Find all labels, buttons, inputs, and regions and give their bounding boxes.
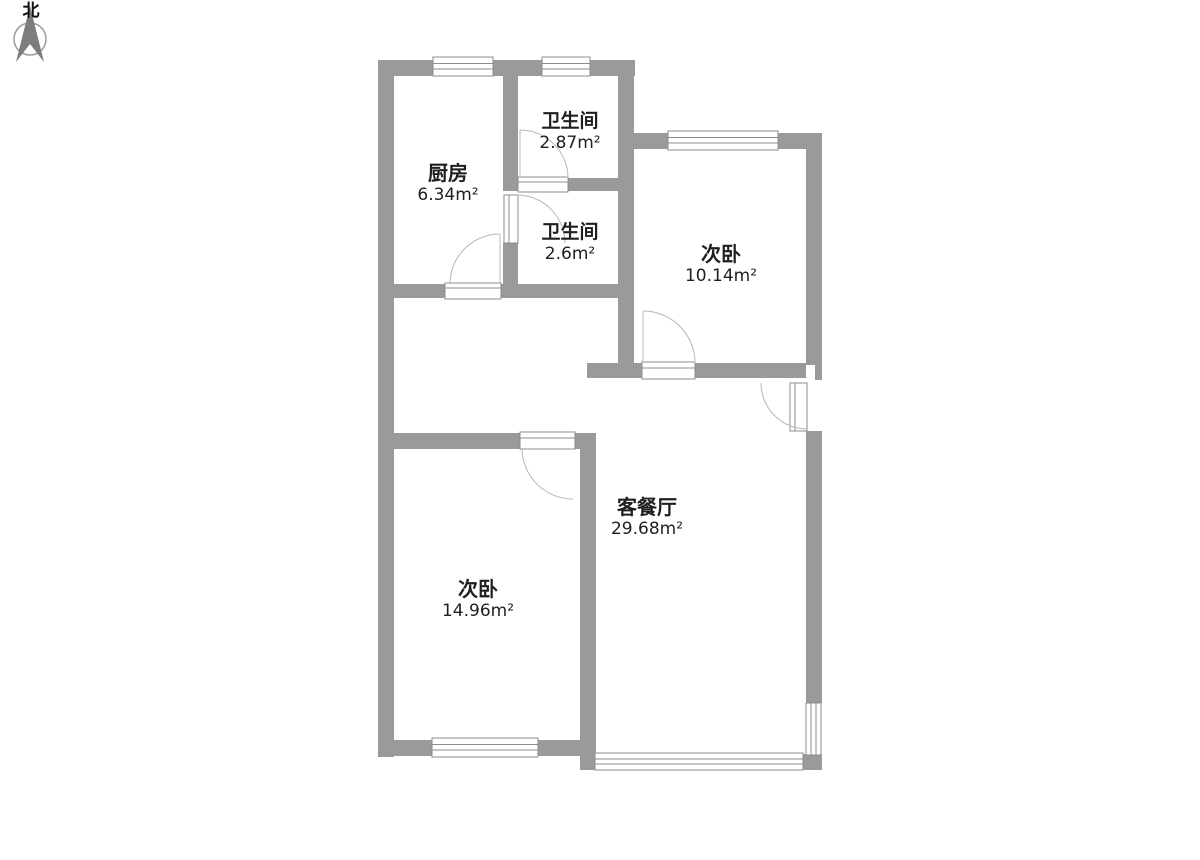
wall-kitchen-bottom (378, 284, 633, 298)
wall-bedroombl-right (580, 433, 596, 755)
wall-entry-notch (815, 363, 822, 380)
window-bedroombl-bottom (432, 738, 538, 757)
window-living-bottom (595, 753, 803, 770)
wall-right-upper (806, 133, 822, 365)
wall-left-exterior (378, 60, 394, 757)
window-right-vertical (806, 703, 821, 755)
door-bedroomtr (642, 311, 695, 379)
wall-kitchen-bath-divider (503, 75, 518, 178)
door-bath-mid (504, 195, 565, 243)
wall-top-kitchen-bath (378, 60, 635, 76)
wall-bath-right-column (618, 75, 634, 377)
door-kitchen (445, 234, 501, 299)
compass-north-label: 北 (10, 2, 52, 21)
door-bath-top (518, 130, 568, 192)
window-bedroomtr-top (668, 131, 778, 150)
wall-right-mid (806, 431, 822, 703)
window-bath-top (542, 57, 590, 76)
floorplan-canvas: 北 厨房 6.34m² 卫生间 2.87m² 卫生间 2.6m² 次卧 10.1… (0, 0, 1200, 860)
window-kitchen-top (433, 57, 493, 76)
floorplan-drawing (0, 0, 1200, 860)
door-bedroombl (520, 432, 575, 499)
wall-bath2-left-lower (503, 243, 518, 288)
walls (378, 60, 822, 770)
door-entry (761, 380, 822, 431)
wall-bedroomtr-bottom (587, 363, 806, 378)
